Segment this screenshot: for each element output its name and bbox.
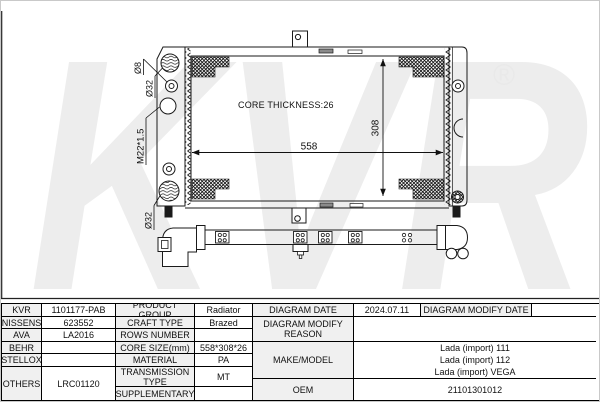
product-group-label: PRODUCT GROUP <box>116 304 195 317</box>
craft-type-label: CRAFT TYPE <box>116 317 195 329</box>
brand-stellox-label: STELLOX <box>2 354 42 367</box>
bottom-tab-hole <box>295 216 301 222</box>
top-port-32 <box>161 54 179 72</box>
make-model-line-3: Lada (import) VEGA <box>434 366 515 378</box>
right-crimp-serration <box>445 48 451 205</box>
top-tab-hole <box>295 34 300 39</box>
make-model-line-2: Lada (import) 112 <box>440 354 510 366</box>
cap-roller-right <box>458 248 469 259</box>
brand-behr-label: BEHR <box>2 342 42 354</box>
drain-plug-center <box>455 195 460 200</box>
right-end-cap <box>446 226 468 250</box>
make-model-label: MAKE/MODEL <box>253 342 354 379</box>
center-bracket <box>293 245 308 252</box>
lower-hole-inner <box>167 167 172 172</box>
thread-spec-label: M22*1.5 <box>136 129 147 164</box>
left-flange <box>197 226 206 250</box>
width-dim-label: 558 <box>301 142 318 153</box>
radiator-technical-drawing: KVR ® <box>1 1 600 301</box>
hole-8-inner <box>169 84 174 89</box>
make-model-line-1: Lada (import) 111 <box>440 342 510 354</box>
spec-table-left: KVR 1101177-PAB PRODUCT GROUP Radiator N… <box>2 304 253 400</box>
elbow-pipe-opening <box>162 241 169 249</box>
transmission-type-value: MT <box>195 367 253 387</box>
brand-kvr-label: KVR <box>2 304 42 317</box>
oem-label: OEM <box>253 379 354 400</box>
diagram-modify-reason-value <box>354 317 596 342</box>
brand-nissens-label: NISSENS <box>2 317 42 329</box>
diagram-modify-date-label: DIAGRAM MODIFY DATE <box>421 304 532 317</box>
bottom-slot-open <box>350 204 363 208</box>
make-model-value: Lada (import) 111 Lada (import) 112 Lada… <box>354 342 596 379</box>
material-value: PA <box>195 354 253 367</box>
bottom-port-32 <box>159 181 179 201</box>
brand-ava-label: AVA <box>2 329 42 342</box>
supplementary-label: SUPPLEMENTARY <box>116 387 195 400</box>
core-size-value: 558*308*26 <box>195 342 253 354</box>
right-mount-pin <box>453 206 460 217</box>
left-mount-pin <box>165 206 172 217</box>
registered-mark: ® <box>493 59 515 92</box>
diagram-modify-date-value <box>532 304 596 317</box>
inlet-diameter-label: Ø8 <box>133 62 143 74</box>
outlet-diameter-label: Ø32 <box>144 212 154 229</box>
top-port-diameter-label: Ø32 <box>145 80 155 97</box>
core-size-label: CORE SIZE(mm) <box>116 342 195 354</box>
radiator-datasheet: KVR ® <box>0 0 600 402</box>
brand-behr-value <box>42 342 116 354</box>
cap-roller-left <box>446 248 457 259</box>
supplementary-value <box>195 387 253 400</box>
craft-type-value: Brazed <box>195 317 253 329</box>
top-slot-filled <box>319 49 333 53</box>
material-label: MATERIAL <box>116 354 195 367</box>
rows-number-value <box>195 329 253 342</box>
brand-stellox-value <box>42 354 116 367</box>
brand-ava-value: LA2016 <box>42 329 116 342</box>
product-group-value: Radiator <box>195 304 253 317</box>
right-flange <box>437 226 446 250</box>
diagram-date-value: 2024.07.11 <box>354 304 421 317</box>
bottom-slot-filled <box>320 203 333 207</box>
brand-others-label: OTHERS <box>2 367 42 400</box>
brand-nissens-value: 623552 <box>42 317 116 329</box>
top-slot-open <box>348 50 362 54</box>
spec-table-right: DIAGRAM DATE 2024.07.11 DIAGRAM MODIFY D… <box>253 304 596 400</box>
core-thickness-label: CORE THICKNESS:26 <box>238 100 334 110</box>
rows-number-label: ROWS NUMBER <box>116 329 195 342</box>
diagram-date-label: DIAGRAM DATE <box>253 304 354 317</box>
spec-table: KVR 1101177-PAB PRODUCT GROUP Radiator N… <box>1 303 600 401</box>
right-bolt-hole-inner <box>456 84 461 89</box>
height-dim-label: 308 <box>371 119 382 136</box>
diagram-modify-reason-label: DIAGRAM MODIFY REASON <box>253 317 354 342</box>
brand-others-value: LRC01120 <box>42 367 116 400</box>
transmission-type-label: TRANSMISSION TYPE <box>116 367 195 387</box>
brand-kvr-value: 1101177-PAB <box>42 304 116 317</box>
thread-port-m22 <box>160 98 176 114</box>
oem-value: 21101301012 <box>354 379 596 400</box>
